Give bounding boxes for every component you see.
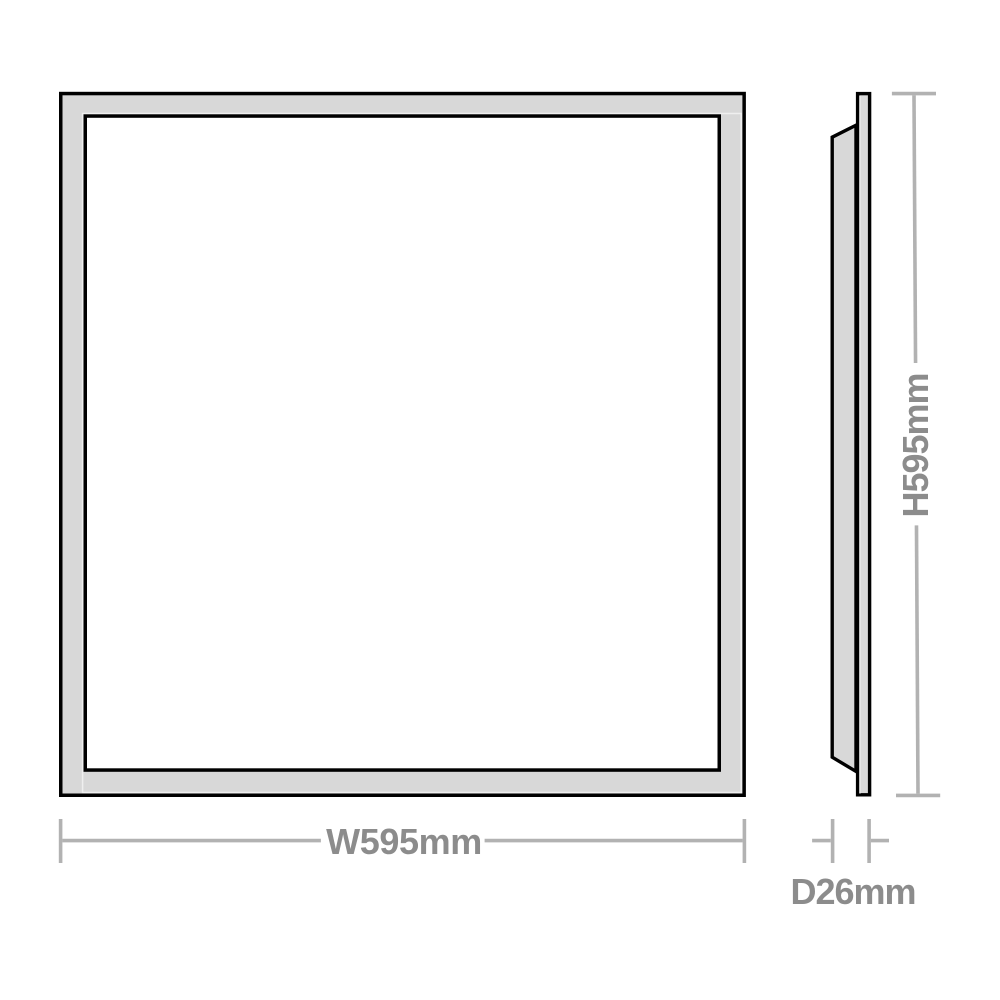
svg-text:D26mm: D26mm bbox=[790, 871, 915, 912]
svg-text:W595mm: W595mm bbox=[326, 821, 482, 862]
svg-text:H595mm: H595mm bbox=[895, 373, 936, 517]
